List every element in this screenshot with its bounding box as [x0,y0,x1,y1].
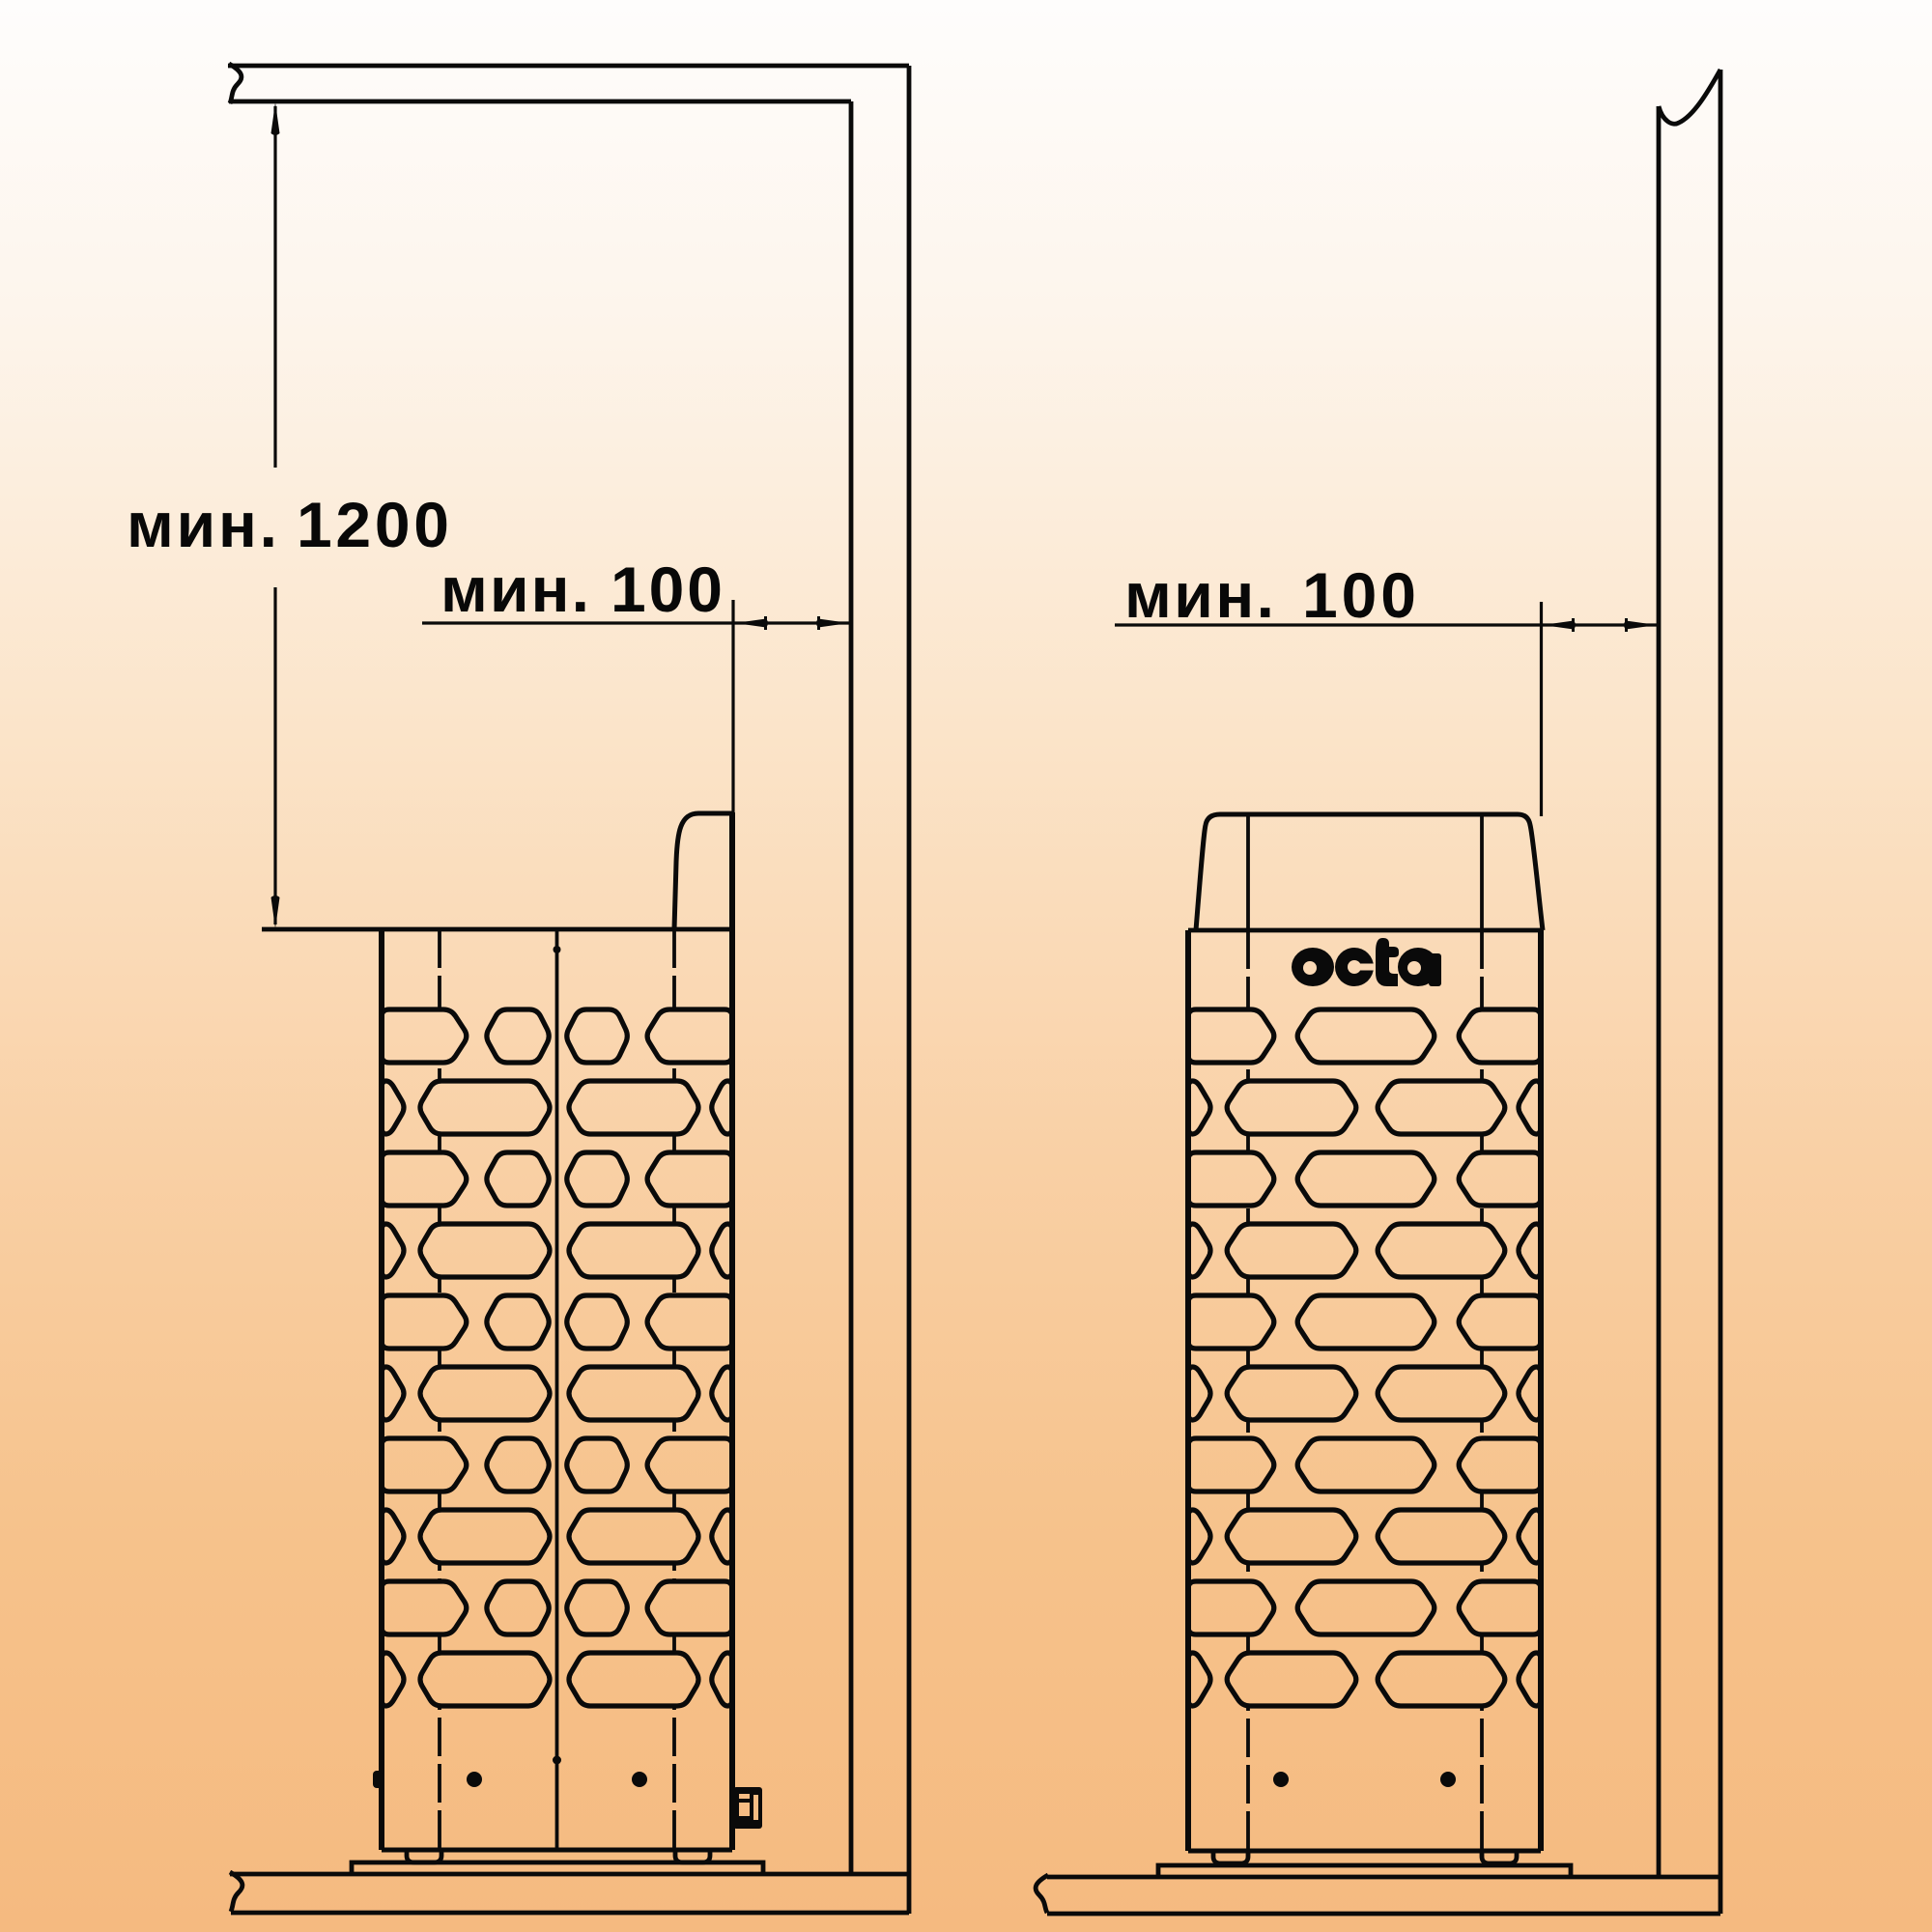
svg-text:мин.: мин. [440,554,589,625]
svg-text:мин.: мин. [1124,559,1274,631]
svg-text:100: 100 [1302,559,1416,631]
svg-text:100: 100 [611,554,723,625]
svg-text:мин.: мин. [127,489,277,560]
